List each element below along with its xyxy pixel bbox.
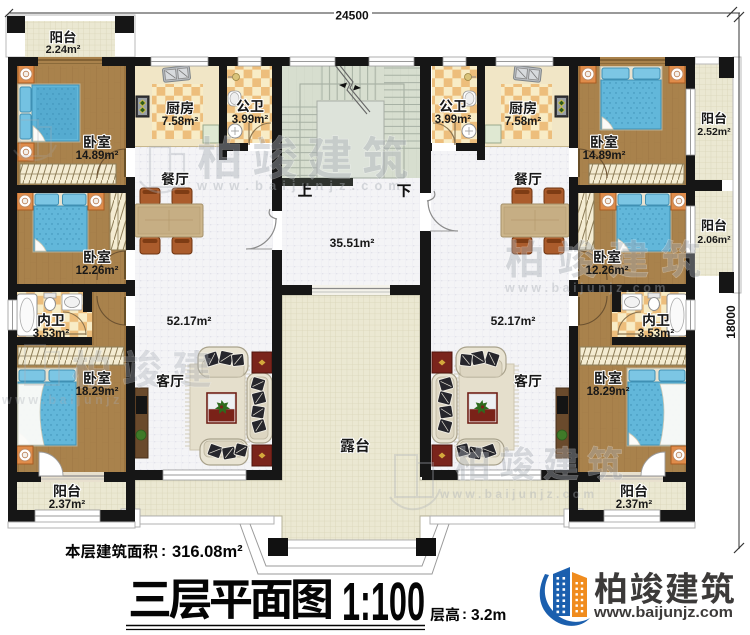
svg-text:18.29m²: 18.29m²: [76, 386, 119, 398]
svg-text:12.26m²: 12.26m²: [586, 265, 629, 277]
svg-text:2.24m²: 2.24m²: [46, 44, 81, 56]
svg-text:2.37m²: 2.37m²: [49, 499, 86, 511]
svg-text:14.89m²: 14.89m²: [76, 150, 119, 162]
svg-text:52.17m²: 52.17m²: [167, 314, 212, 328]
svg-text:18000: 18000: [724, 305, 738, 339]
svg-text:18.29m²: 18.29m²: [587, 386, 630, 398]
svg-text:52.17m²: 52.17m²: [491, 314, 536, 328]
svg-text:www.baijunjz.com: www.baijunjz.com: [593, 605, 733, 621]
svg-text:2.06m²: 2.06m²: [697, 234, 731, 246]
svg-text:35.51m²: 35.51m²: [330, 236, 375, 250]
svg-text:24500: 24500: [335, 9, 369, 23]
svg-text::: :: [462, 606, 467, 623]
svg-text:3.53m²: 3.53m²: [638, 328, 675, 340]
svg-text:7.58m²: 7.58m²: [162, 116, 199, 128]
svg-text:3.99m²: 3.99m²: [232, 114, 269, 126]
svg-text:3.99m²: 3.99m²: [435, 114, 472, 126]
svg-text:316.08m²: 316.08m²: [172, 543, 243, 561]
svg-text:2.37m²: 2.37m²: [616, 499, 653, 511]
svg-text:2.52m²: 2.52m²: [697, 126, 731, 138]
svg-text:1:100: 1:100: [342, 572, 425, 632]
svg-text:3.2m: 3.2m: [471, 607, 506, 624]
svg-text:3.53m²: 3.53m²: [33, 328, 70, 340]
svg-text:w w w . b a i j u n j z . c o: w w w . b a i j u n j z . c o m: [504, 281, 665, 295]
svg-text::: :: [161, 543, 166, 560]
svg-text:12.26m²: 12.26m²: [76, 265, 119, 277]
svg-text:7.58m²: 7.58m²: [505, 116, 542, 128]
svg-text:w w w . b a i j u n j z . c o: w w w . b a i j u n j z . c o m: [196, 178, 401, 193]
svg-text:14.89m²: 14.89m²: [583, 150, 626, 162]
svg-text:w w w . b a i j u n j z . c o: w w w . b a i j u n j z . c o m: [439, 487, 594, 501]
